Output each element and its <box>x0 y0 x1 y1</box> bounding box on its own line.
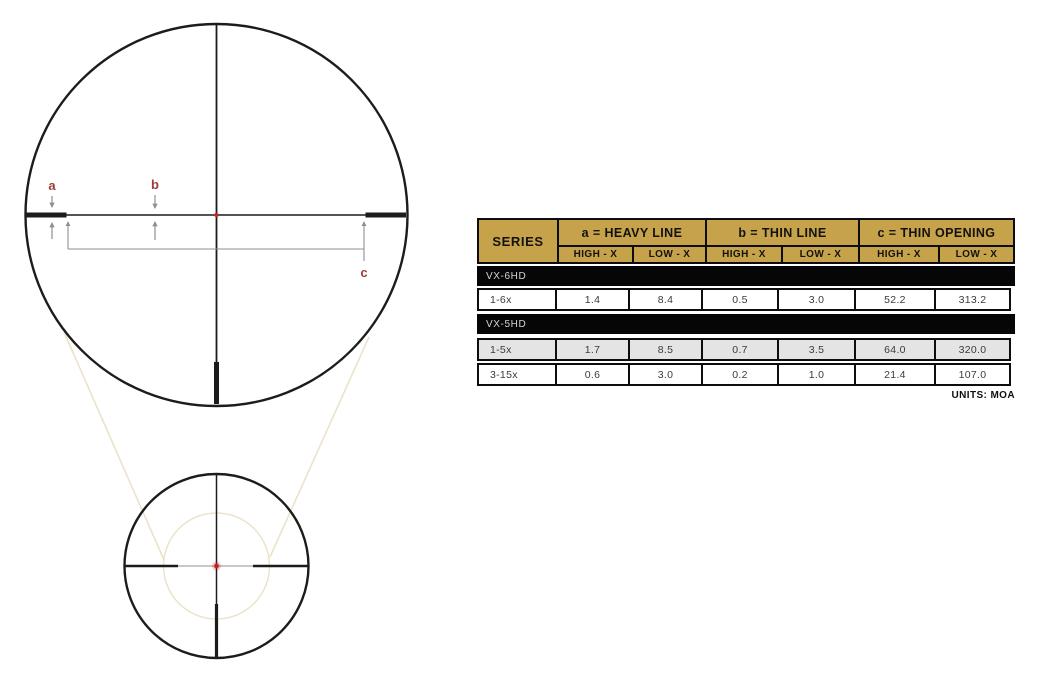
value-cell: 107.0 <box>936 363 1011 386</box>
value-cell: 0.5 <box>703 288 779 311</box>
value-cell: 3.5 <box>779 338 856 361</box>
value-cell: 3.0 <box>779 288 856 311</box>
page: a b c SERIE <box>0 0 1040 682</box>
column-group-heavy-line: a = HEAVY LINE <box>559 220 705 245</box>
subtension-table: SERIES a = HEAVY LINE b = THIN LINE c = … <box>477 218 1015 386</box>
value-cell: 1.4 <box>557 288 630 311</box>
subheader-high-x: HIGH - X <box>858 245 938 262</box>
value-cell: 21.4 <box>856 363 936 386</box>
center-red-dot <box>214 213 218 217</box>
subheader-high-x: HIGH - X <box>559 245 632 262</box>
value-cell: 8.4 <box>630 288 703 311</box>
column-header-series: SERIES <box>479 220 559 262</box>
value-cell: 0.7 <box>703 338 779 361</box>
value-cell: 8.5 <box>630 338 703 361</box>
value-cell: 1.0 <box>779 363 856 386</box>
value-cell: 313.2 <box>936 288 1011 311</box>
value-cell: 64.0 <box>856 338 936 361</box>
subheader-low-x: LOW - X <box>781 245 858 262</box>
model-cell: 1-6x <box>477 288 557 311</box>
column-group-thin-line: b = THIN LINE <box>705 220 858 245</box>
small-red-dot <box>214 564 219 569</box>
table-header: SERIES a = HEAVY LINE b = THIN LINE c = … <box>477 218 1015 264</box>
series-band-vx5hd: VX-5HD <box>477 314 1015 334</box>
large-reticle-view <box>26 24 408 406</box>
label-a: a <box>48 178 56 193</box>
value-cell: 0.6 <box>557 363 630 386</box>
value-cell: 3.0 <box>630 363 703 386</box>
small-reticle-view <box>125 474 309 658</box>
value-cell: 320.0 <box>936 338 1011 361</box>
table-row: 1-6x 1.4 8.4 0.5 3.0 52.2 313.2 <box>477 288 1015 311</box>
subheader-low-x: LOW - X <box>632 245 705 262</box>
units-note: UNITS: MOA <box>477 390 1015 401</box>
model-cell: 3-15x <box>477 363 557 386</box>
reticle-diagram: a b c <box>0 0 440 682</box>
label-b: b <box>151 177 159 192</box>
model-cell: 1-5x <box>477 338 557 361</box>
measurement-annotations: a b c <box>48 177 367 280</box>
label-c: c <box>360 265 367 280</box>
subheader-high-x: HIGH - X <box>705 245 781 262</box>
value-cell: 52.2 <box>856 288 936 311</box>
column-group-thin-opening: c = THIN OPENING <box>858 220 1013 245</box>
value-cell: 0.2 <box>703 363 779 386</box>
value-cell: 1.7 <box>557 338 630 361</box>
table-row: 1-5x 1.7 8.5 0.7 3.5 64.0 320.0 <box>477 338 1015 361</box>
table-row: 3-15x 0.6 3.0 0.2 1.0 21.4 107.0 <box>477 363 1015 386</box>
series-band-vx6hd: VX-6HD <box>477 266 1015 286</box>
subheader-low-x: LOW - X <box>938 245 1013 262</box>
